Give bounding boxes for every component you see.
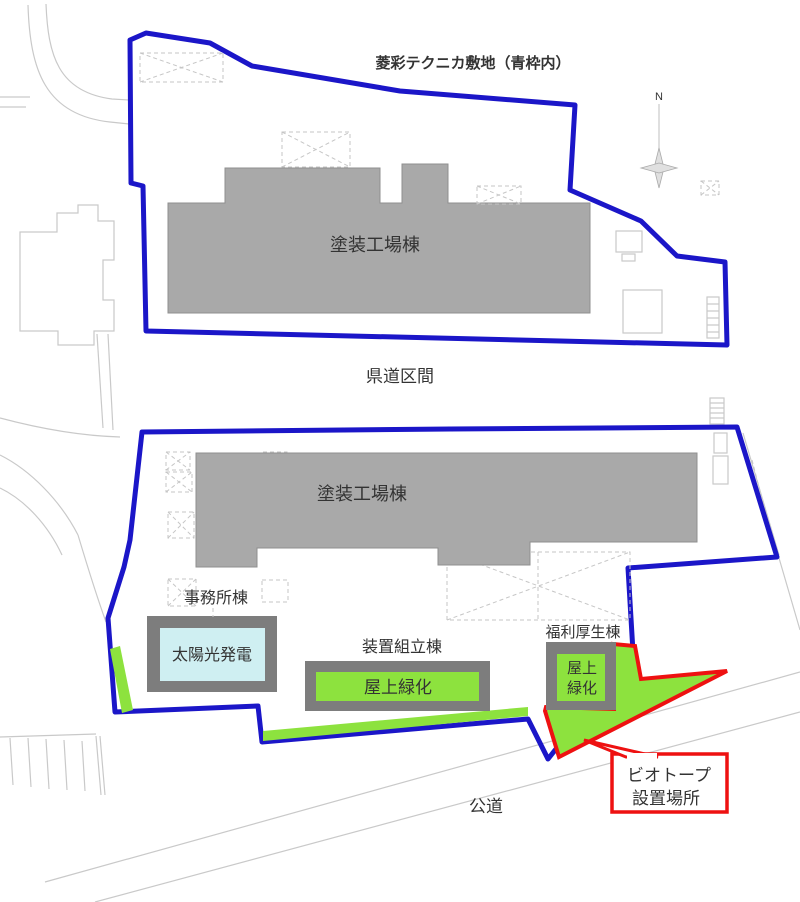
- label-biotope-line2: 設置場所: [632, 789, 700, 808]
- label-rooftop-green: 屋上緑化: [364, 678, 432, 697]
- building-assembly: 屋上緑化: [305, 661, 490, 711]
- label-office-building: 事務所棟: [184, 589, 248, 607]
- stair-symbol-upper: [707, 297, 719, 338]
- label-public-road: 公道: [469, 797, 503, 816]
- truck-symbol: [713, 433, 728, 484]
- north-label: N: [655, 91, 663, 103]
- site-plan-canvas: 塗装工場棟 N 県道区間 塗装工場棟: [0, 0, 800, 902]
- north-arrow: N: [641, 91, 677, 188]
- stair-symbol-mid: [710, 398, 724, 424]
- label-prefectural-road: 県道区間: [366, 367, 434, 386]
- yard-square: [623, 290, 662, 333]
- label-rooftop-green-2-line1: 屋上: [567, 660, 597, 677]
- site-plan-svg: 塗装工場棟 N 県道区間 塗装工場棟: [0, 0, 800, 902]
- label-biotope-line1: ビオトープ: [627, 766, 711, 785]
- building-welfare: 屋上 緑化: [546, 642, 616, 710]
- label-paint-factory-lower: 塗装工場棟: [317, 483, 407, 504]
- label-assembly-building: 装置組立棟: [362, 638, 442, 656]
- label-welfare-building: 福利厚生棟: [545, 624, 620, 641]
- building-paint-factory-lower: [196, 453, 697, 567]
- equipment-symbol: [616, 231, 642, 261]
- building-office: 太陽光発電: [147, 616, 277, 692]
- label-solar: 太陽光発電: [172, 646, 252, 664]
- label-paint-factory-upper: 塗装工場棟: [330, 234, 420, 255]
- label-rooftop-green-2-line2: 緑化: [567, 680, 597, 697]
- page-title: 菱彩テクニカ敷地（青枠内）: [375, 54, 570, 72]
